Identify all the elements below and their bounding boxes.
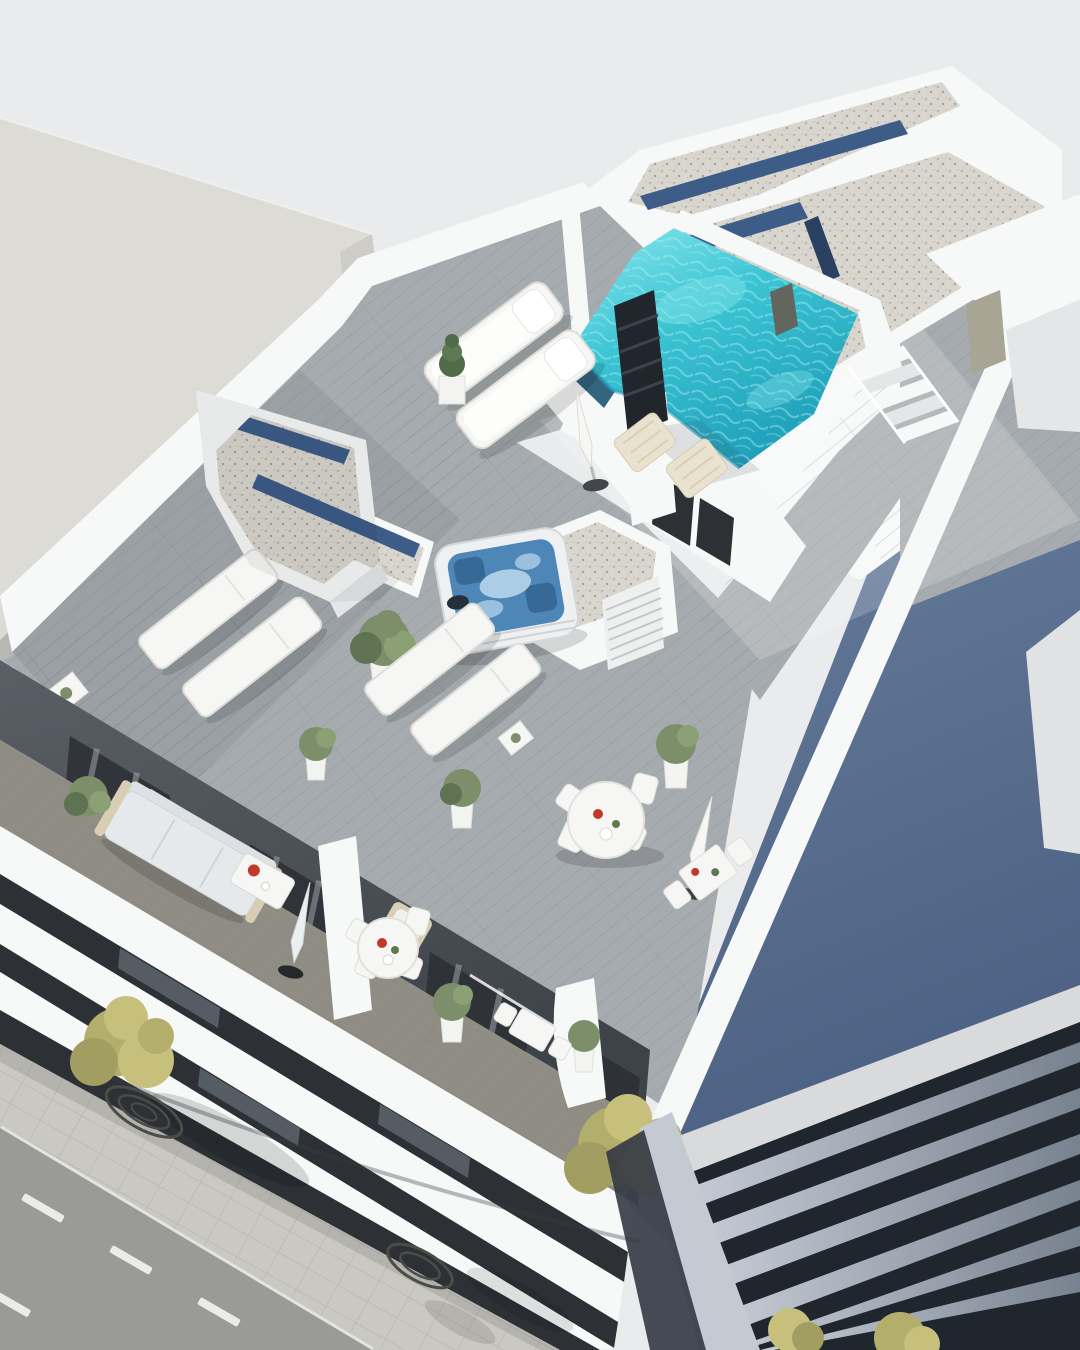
planter-pot	[439, 376, 465, 404]
plate	[600, 828, 612, 840]
jacuzzi-seat	[524, 581, 558, 614]
round-table-top	[568, 782, 644, 858]
planter-pot	[441, 1018, 463, 1042]
planter-pot	[574, 1050, 594, 1072]
round-table-top	[358, 918, 418, 978]
plant-foliage	[453, 985, 473, 1005]
tree-foliage	[564, 1142, 616, 1194]
tree-foliage	[70, 1038, 118, 1086]
red-item	[377, 938, 387, 948]
conifer-foliage	[445, 334, 459, 348]
tree-foliage	[350, 632, 382, 664]
tree-foliage	[374, 610, 402, 638]
tree-foliage	[138, 1018, 174, 1054]
aerial-render	[0, 0, 1080, 1350]
planter-pot	[664, 760, 688, 788]
green-item	[612, 820, 620, 828]
red-bowl	[593, 809, 603, 819]
plant-foliage	[440, 783, 462, 805]
plant-foliage	[568, 1020, 600, 1052]
plant-foliage	[677, 725, 699, 747]
green-item	[391, 946, 399, 954]
plate	[383, 955, 393, 965]
bulkhead-door	[966, 290, 1006, 374]
plant-foliage	[89, 791, 111, 813]
render-viewport	[0, 0, 1080, 1350]
plant-foliage	[64, 792, 88, 816]
plant-foliage	[316, 728, 336, 748]
